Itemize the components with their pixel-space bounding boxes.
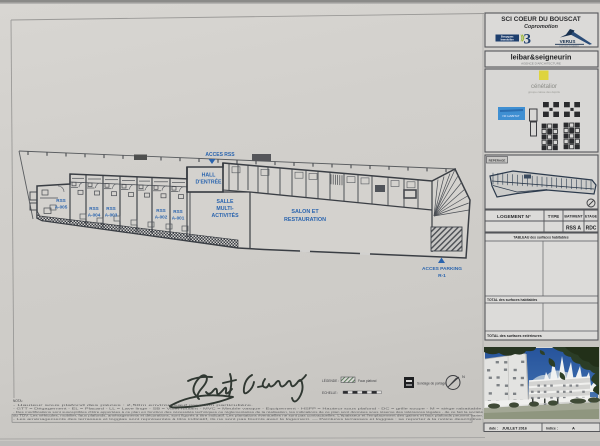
svg-text:A-004: A-004 xyxy=(88,213,101,218)
svg-text:Faux plafond: Faux plafond xyxy=(358,379,377,383)
svg-text:AGENCE D'ARCHITECTURE: AGENCE D'ARCHITECTURE xyxy=(521,62,561,66)
svg-text:RSS A: RSS A xyxy=(566,226,581,232)
svg-text:SALLE: SALLE xyxy=(216,199,234,205)
svg-text:ACCES RSS: ACCES RSS xyxy=(205,152,235,158)
svg-text:A-001: A-001 xyxy=(172,216,185,221)
svg-text:D'ENTRÉE: D'ENTRÉE xyxy=(195,178,222,186)
svg-text:TABLEAU des surfaces habitable: TABLEAU des surfaces habitables xyxy=(513,236,568,240)
svg-text:MULTI-: MULTI- xyxy=(216,206,233,212)
svg-text:RSS: RSS xyxy=(173,209,182,214)
svg-text:R-1: R-1 xyxy=(438,273,446,279)
svg-text:groupe caisse des dépôts: groupe caisse des dépôts xyxy=(528,90,560,94)
svg-text:JUILLET 2016: JUILLET 2016 xyxy=(502,426,527,430)
svg-text:RSS: RSS xyxy=(106,206,115,211)
svg-text:TYPE: TYPE xyxy=(548,214,560,219)
svg-text:NOTA :: NOTA : xyxy=(13,399,23,403)
svg-text:SCI COEUR DU BOUSCAT: SCI COEUR DU BOUSCAT xyxy=(501,16,581,23)
svg-text:ETAGE: ETAGE xyxy=(585,215,598,219)
svg-text:Copromotion: Copromotion xyxy=(524,24,559,30)
svg-text:- Hauteur sous plafond des piè: - Hauteur sous plafond des pièces : 2,50… xyxy=(13,403,254,407)
svg-text:A: A xyxy=(572,425,575,430)
svg-text:SALON ET: SALON ET xyxy=(291,209,319,215)
svg-text:BATIMENT: BATIMENT xyxy=(564,215,583,219)
svg-text:- Les aménagements des terrass: - Les aménagements des terrasses et logg… xyxy=(13,417,483,421)
svg-text:RSS: RSS xyxy=(89,206,98,211)
svg-text:VERUS: VERUS xyxy=(560,39,576,44)
svg-text:TOTAL des surfaces habitables: TOTAL des surfaces habitables xyxy=(487,298,537,302)
svg-text:- GTT = Dégagement - EL = Plac: - GTT = Dégagement - EL = Placard - LL =… xyxy=(13,406,484,410)
svg-text:- Des modifications sont susce: - Des modifications sont susceptibles d'… xyxy=(13,410,484,414)
svg-text:ACTIVITÉS: ACTIVITÉS xyxy=(211,211,239,219)
svg-text:LÉGENDE :: LÉGENDE : xyxy=(322,378,339,383)
svg-text:A-003: A-003 xyxy=(105,213,118,218)
svg-text:N: N xyxy=(462,374,465,379)
svg-text:promotion immobilière: promotion immobilière xyxy=(559,45,580,48)
svg-text:HALL: HALL xyxy=(202,173,217,179)
svg-text:3: 3 xyxy=(524,32,532,48)
svg-text:Indice :: Indice : xyxy=(546,426,558,430)
svg-text:ECHELLE :: ECHELLE : xyxy=(322,391,338,395)
svg-text:A-005: A-005 xyxy=(55,205,68,210)
svg-text:TOTAL des surfaces extérieures: TOTAL des surfaces extérieures xyxy=(487,334,542,338)
svg-text:Immobilier: Immobilier xyxy=(501,38,514,42)
svg-text:RSS: RSS xyxy=(156,208,165,213)
svg-text:NF HABITAT: NF HABITAT xyxy=(502,114,519,118)
svg-text:Sondage de portage: Sondage de portage xyxy=(417,382,446,386)
svg-text:REPERAGE: REPERAGE xyxy=(489,159,506,163)
svg-text:RSS: RSS xyxy=(56,198,65,203)
svg-text:RESTAURATION: RESTAURATION xyxy=(284,217,326,223)
svg-text:RDC: RDC xyxy=(586,226,597,232)
svg-text:leibar&seigneurin: leibar&seigneurin xyxy=(511,53,572,62)
svg-text:date :: date : xyxy=(489,426,498,430)
svg-text:A-002: A-002 xyxy=(155,215,168,220)
svg-text:LOGEMENT N°: LOGEMENT N° xyxy=(497,214,531,220)
svg-text:ACCES PARKING: ACCES PARKING xyxy=(422,266,462,272)
